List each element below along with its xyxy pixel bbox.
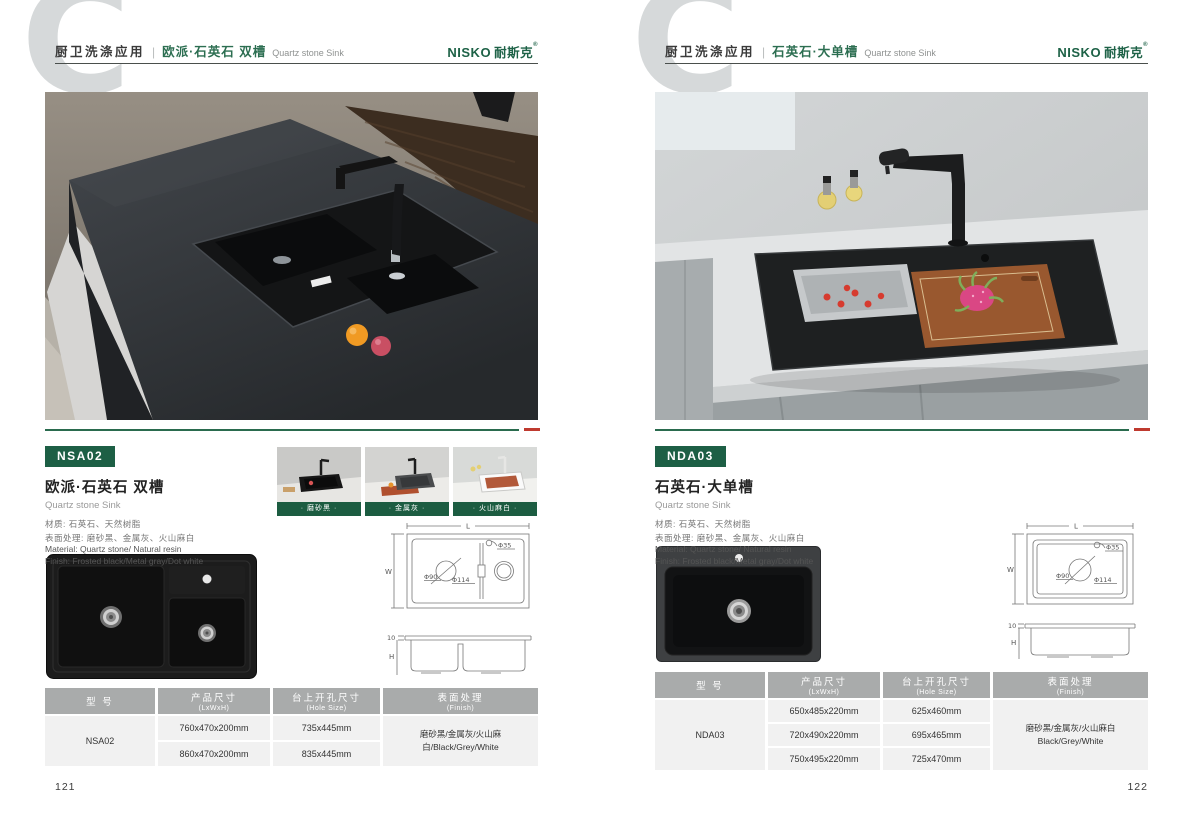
cell-hole: 835x445mm: [273, 742, 380, 766]
catalog-page-left: C 厨卫洗涤应用 | 欧派·石英石 双槽 Quartz stone Sink N…: [45, 0, 538, 820]
dim-faucet-hole: Φ35: [1106, 544, 1119, 552]
dim-drain-outer: Φ114: [452, 576, 470, 584]
dim-L: L: [1074, 523, 1078, 531]
dim-drain: Φ90: [424, 573, 437, 581]
spec-table: 型 号 产品尺寸 (LxWxH) 台上开孔尺寸 (Hole Size) 表面处理…: [45, 688, 538, 766]
swatch-image-gray: [365, 447, 449, 502]
material-en: Material: Quartz stone/ Natural resin: [655, 544, 883, 556]
cell-hole: 725x470mm: [883, 748, 990, 770]
brand-logo-cn: 耐斯克: [1104, 46, 1143, 60]
product-info: NSA02 欧派·石英石 双槽 Quartz stone Sink 材质: 石英…: [45, 446, 273, 568]
photo-scene-dark-kitchen: [45, 92, 538, 420]
swatch-image-white: [453, 447, 537, 502]
header-title-en: Quartz stone Sink: [272, 48, 344, 58]
col-header-size: 产品尺寸 (LxWxH): [158, 688, 270, 714]
registered-mark: ®: [1143, 42, 1148, 48]
accent-divider-green: [655, 429, 1129, 431]
cell-hole: 625x460mm: [883, 700, 990, 722]
surface-cn: 表面处理: 磨砂黑、金属灰、火山麻白: [45, 532, 273, 544]
page-number: 121: [55, 781, 76, 793]
col-header-size: 产品尺寸 (LxWxH): [768, 672, 880, 698]
swatch-metal-gray: · 金属灰 ·: [365, 447, 449, 516]
header-rule: [665, 63, 1148, 64]
product-photo-single-sink: [655, 92, 1148, 420]
product-info: NDA03 石英石·大单槽 Quartz stone Sink 材质: 石英石、…: [655, 446, 883, 568]
cell-size: 760x470x200mm: [158, 716, 270, 740]
header-category: 厨卫洗涤应用: [55, 41, 145, 60]
header-title-en: Quartz stone Sink: [864, 48, 936, 58]
col-header-model: 型 号: [45, 688, 155, 714]
dim-W: W: [1007, 566, 1014, 574]
page-number: 122: [1127, 781, 1148, 793]
brand-logo: NISKO耐斯克®: [1057, 42, 1148, 61]
header-category: 厨卫洗涤应用: [665, 41, 755, 60]
swatch-label: · 火山麻白 ·: [453, 502, 537, 516]
brand-logo-latin: NISKO: [447, 45, 491, 60]
model-badge: NDA03: [655, 446, 726, 467]
finish-en: Finish: Frosted black/Metal gray/Dot whi…: [45, 556, 273, 568]
swatch-image-black: [277, 447, 361, 502]
col-header-finish: 表面处理 (Finish): [993, 672, 1148, 698]
cell-size: 860x470x200mm: [158, 742, 270, 766]
cell-size: 720x490x220mm: [768, 724, 880, 746]
swatch-dot-white: · 火山麻白 ·: [453, 447, 537, 516]
material-en: Material: Quartz stone/ Natural resin: [45, 544, 273, 556]
dim-drain-outer: Φ114: [1094, 576, 1112, 584]
header-separator: |: [152, 45, 155, 59]
product-name-cn: 欧派·石英石 双槽: [45, 476, 273, 497]
page-header: 厨卫洗涤应用 | 石英石·大单槽 Quartz stone Sink: [665, 41, 1030, 60]
product-name-cn: 石英石·大单槽: [655, 476, 883, 497]
brand-logo-latin: NISKO: [1057, 45, 1101, 60]
technical-drawing-single-sink: L W Φ35 Φ90 Φ114 10 H: [1007, 518, 1147, 660]
cell-model: NSA02: [45, 716, 155, 766]
col-header-hole: 台上开孔尺寸 (Hole Size): [883, 672, 990, 698]
material-cn: 材质: 石英石、天然树脂: [45, 518, 273, 530]
spec-table: 型 号 产品尺寸 (LxWxH) 台上开孔尺寸 (Hole Size) 表面处理…: [655, 672, 1148, 770]
product-name-en: Quartz stone Sink: [655, 500, 883, 511]
render-image-double-sink: [45, 553, 258, 680]
surface-cn: 表面处理: 磨砂黑、金属灰、火山麻白: [655, 532, 883, 544]
brand-logo-cn: 耐斯克: [494, 46, 533, 60]
dim-H: H: [389, 653, 394, 661]
cell-size: 650x485x220mm: [768, 700, 880, 722]
color-swatches: · 磨砂黑 · · 金属灰 ·: [277, 447, 537, 516]
swatch-frosted-black: · 磨砂黑 ·: [277, 447, 361, 516]
page-header: 厨卫洗涤应用 | 欧派·石英石 双槽 Quartz stone Sink: [55, 41, 420, 60]
product-photo-double-sink: [45, 92, 538, 420]
cell-hole: 695x465mm: [883, 724, 990, 746]
dim-L: L: [466, 523, 470, 531]
registered-mark: ®: [533, 42, 538, 48]
technical-drawing-double-sink: L W Φ35 Φ90 Φ114 10 H: [383, 518, 548, 678]
header-separator: |: [762, 45, 765, 59]
dim-W: W: [385, 568, 392, 576]
col-header-finish: 表面处理 (Finish): [383, 688, 538, 714]
col-header-hole: 台上开孔尺寸 (Hole Size): [273, 688, 380, 714]
col-header-model: 型 号: [655, 672, 765, 698]
cell-finish: 磨砂黑/金属灰/火山麻白 Black/Grey/White: [993, 700, 1148, 770]
header-rule: [55, 63, 538, 64]
product-name-en: Quartz stone Sink: [45, 500, 273, 511]
product-render-double-sink: [45, 553, 258, 685]
cell-model: NDA03: [655, 700, 765, 770]
header-title-cn: 石英石·大单槽: [772, 41, 858, 60]
dim-H: H: [1011, 639, 1016, 647]
brand-logo: NISKO耐斯克®: [447, 42, 538, 61]
accent-divider-red: [524, 428, 540, 431]
finish-en: Finish: Frosted black/Metal gray/Dot whi…: [655, 556, 883, 568]
material-cn: 材质: 石英石、天然树脂: [655, 518, 883, 530]
accent-divider-red: [1134, 428, 1150, 431]
cell-finish: 磨砂黑/金属灰/火山麻白/Black/Grey/White: [383, 716, 538, 766]
cell-size: 750x495x220mm: [768, 748, 880, 770]
swatch-label: · 磨砂黑 ·: [277, 502, 361, 516]
dim-drain: Φ90: [1056, 572, 1069, 580]
swatch-label: · 金属灰 ·: [365, 502, 449, 516]
dim-faucet-hole: Φ35: [498, 542, 511, 550]
photo-scene-light-kitchen: [655, 92, 1148, 420]
header-title-cn: 欧派·石英石 双槽: [162, 41, 266, 60]
dim-rim: 10: [1008, 622, 1016, 630]
catalog-page-right: C 厨卫洗涤应用 | 石英石·大单槽 Quartz stone Sink NIS…: [655, 0, 1148, 820]
dim-rim: 10: [387, 634, 395, 642]
model-badge: NSA02: [45, 446, 115, 467]
cell-hole: 735x445mm: [273, 716, 380, 740]
accent-divider-green: [45, 429, 519, 431]
